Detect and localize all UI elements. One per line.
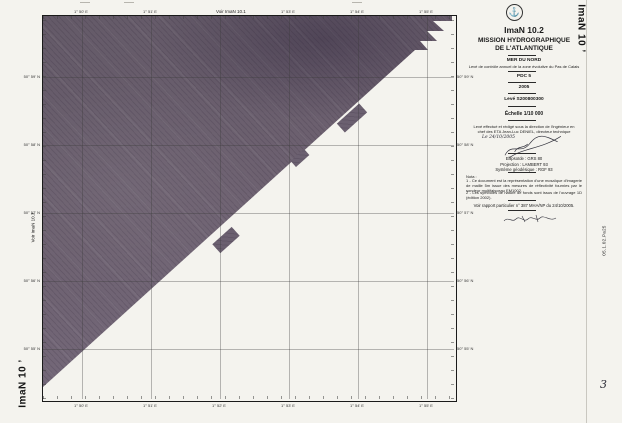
survey-year: 2005 bbox=[462, 85, 586, 90]
archive-code: 05.1.02.Pa25 bbox=[602, 218, 607, 264]
lat-label: 50° 56' N bbox=[457, 278, 481, 283]
lat-label: 50° 59' N bbox=[16, 74, 40, 79]
lon-label: 1° 50' E bbox=[68, 403, 94, 408]
report-reference: Voir rapport particulier n° 387 MHA/NP d… bbox=[462, 203, 586, 208]
divider bbox=[508, 71, 536, 72]
grid-line-horizontal bbox=[43, 349, 454, 350]
scale-label: Échelle 1/10 000 bbox=[462, 111, 586, 117]
mission-title-line1: MISSION HYDROGRAPHIQUE bbox=[462, 37, 586, 44]
divider bbox=[508, 93, 536, 94]
fold-mark bbox=[124, 2, 134, 3]
zone-code: PDC 5 bbox=[462, 74, 586, 79]
grid-line-vertical bbox=[151, 16, 152, 399]
lat-label: 50° 55' N bbox=[457, 346, 481, 351]
adjoining-sheet-ref-top: Voir ImaN 10.1 bbox=[216, 9, 246, 14]
divider bbox=[508, 82, 536, 83]
geodesy-projection: Projection : LAMBERT 93 bbox=[462, 162, 586, 167]
grid-line-vertical bbox=[220, 16, 221, 399]
scanned-sheet: 1° 50' E 1° 51' E 1° 53' E 1° 54' E 1° 5… bbox=[0, 0, 622, 423]
grid-line-vertical bbox=[82, 16, 83, 399]
lon-label: 1° 54' E bbox=[344, 403, 370, 408]
lat-label: 50° 58' N bbox=[457, 142, 481, 147]
tick-marks-top bbox=[43, 16, 454, 19]
grid-line-horizontal bbox=[43, 77, 454, 78]
geodesy-ellipsoid: Ellipsoïde : GRS 80 bbox=[462, 156, 586, 161]
area-name: MER DU NORD bbox=[462, 58, 586, 63]
lat-label: 50° 55' N bbox=[16, 346, 40, 351]
divider bbox=[508, 172, 536, 173]
lat-label: 50° 57' N bbox=[457, 210, 481, 215]
divider bbox=[508, 200, 536, 201]
lon-label: 1° 53' E bbox=[275, 9, 301, 14]
mission-title-line2: DE L'ATLANTIQUE bbox=[462, 45, 586, 52]
divider bbox=[508, 210, 536, 211]
fold-mark bbox=[80, 2, 90, 3]
tick-marks-right bbox=[451, 16, 454, 399]
lat-label: 50° 57' N bbox=[16, 210, 40, 215]
sonar-mosaic bbox=[43, 16, 454, 399]
survey-reference: Levé S200800300 bbox=[462, 97, 586, 102]
lat-label: 50° 58' N bbox=[16, 142, 40, 147]
survey-subtitle: Levé de contrôle annuel de la zone évolu… bbox=[462, 64, 586, 69]
chart-area bbox=[43, 16, 454, 399]
tick-marks-left bbox=[43, 16, 46, 399]
divider bbox=[508, 106, 536, 107]
lon-label: 1° 55' E bbox=[413, 9, 439, 14]
divider bbox=[508, 55, 536, 56]
sheet-mark-bottom-left: ImaN 10 ’ bbox=[18, 352, 29, 416]
handwritten-page-number: 3 bbox=[600, 378, 607, 391]
grid-line-vertical bbox=[427, 16, 428, 399]
lon-label: 1° 53' E bbox=[275, 403, 301, 408]
lon-label: 1° 54' E bbox=[344, 9, 370, 14]
divider bbox=[508, 153, 536, 154]
lon-label: 1° 51' E bbox=[137, 9, 163, 14]
survey-line-stub bbox=[212, 227, 239, 253]
divider bbox=[508, 120, 536, 121]
handwritten-note bbox=[502, 213, 558, 225]
lon-label: 1° 55' E bbox=[413, 403, 439, 408]
grid-line-vertical bbox=[289, 16, 290, 399]
tick-marks-bottom bbox=[43, 396, 454, 399]
grid-line-vertical bbox=[358, 16, 359, 399]
fold-mark bbox=[352, 2, 362, 3]
anchor-icon: ⚓ bbox=[506, 4, 523, 21]
grid-line-horizontal bbox=[43, 281, 454, 282]
lon-label: 1° 51' E bbox=[137, 403, 163, 408]
lon-label: 1° 52' E bbox=[206, 403, 232, 408]
lon-label: 1° 50' E bbox=[68, 9, 94, 14]
lat-label: 50° 56' N bbox=[16, 278, 40, 283]
grid-line-horizontal bbox=[43, 213, 454, 214]
grid-line-horizontal bbox=[43, 145, 454, 146]
adjoining-sheet-ref-left: Voir ImaN 10.3 bbox=[31, 206, 36, 250]
sheet-title: ImaN 10.2 bbox=[462, 25, 586, 35]
sheet-edge-line bbox=[586, 0, 587, 423]
